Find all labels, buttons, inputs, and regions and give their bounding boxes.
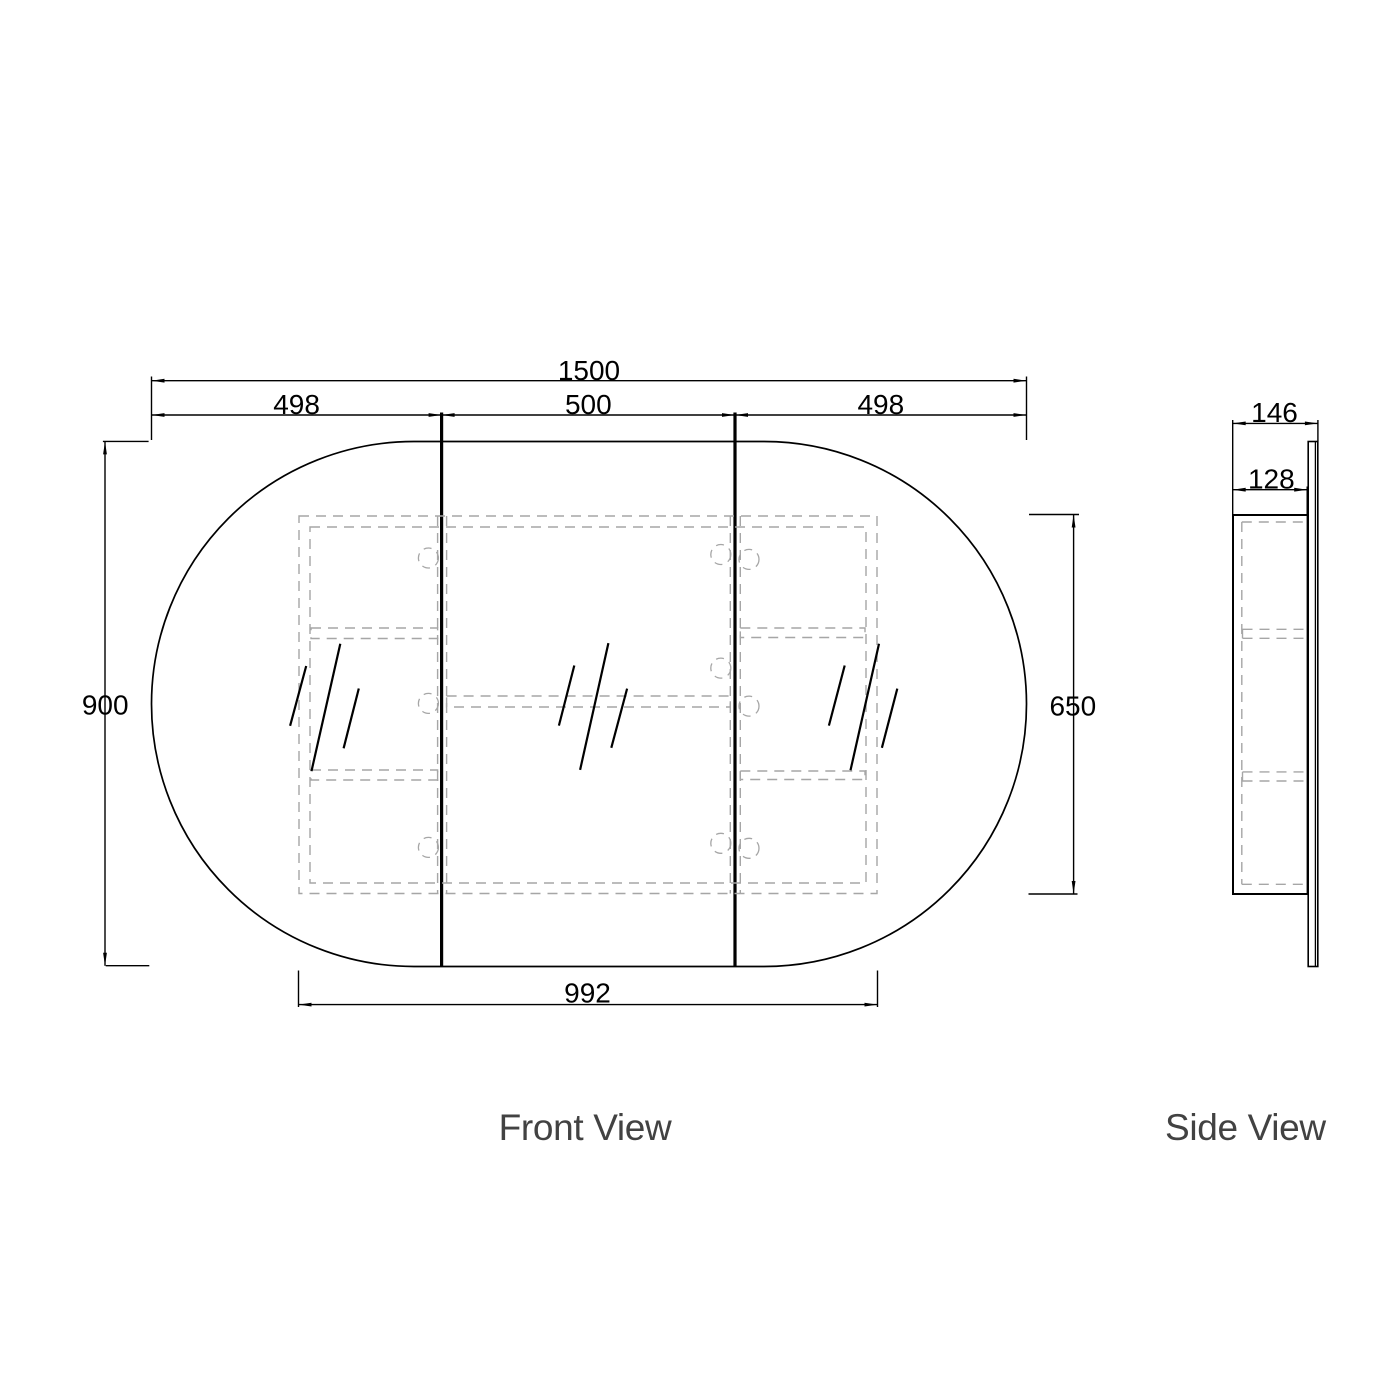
svg-text:Front View: Front View: [499, 1107, 672, 1148]
svg-text:900: 900: [82, 690, 129, 721]
svg-text:146: 146: [1251, 397, 1298, 428]
svg-text:992: 992: [564, 978, 611, 1009]
svg-text:498: 498: [273, 389, 320, 420]
svg-text:500: 500: [565, 389, 612, 420]
svg-text:1500: 1500: [558, 355, 620, 386]
svg-text:Side View: Side View: [1165, 1107, 1326, 1148]
svg-text:650: 650: [1049, 691, 1096, 722]
svg-text:498: 498: [857, 389, 904, 420]
svg-text:128: 128: [1248, 464, 1295, 495]
